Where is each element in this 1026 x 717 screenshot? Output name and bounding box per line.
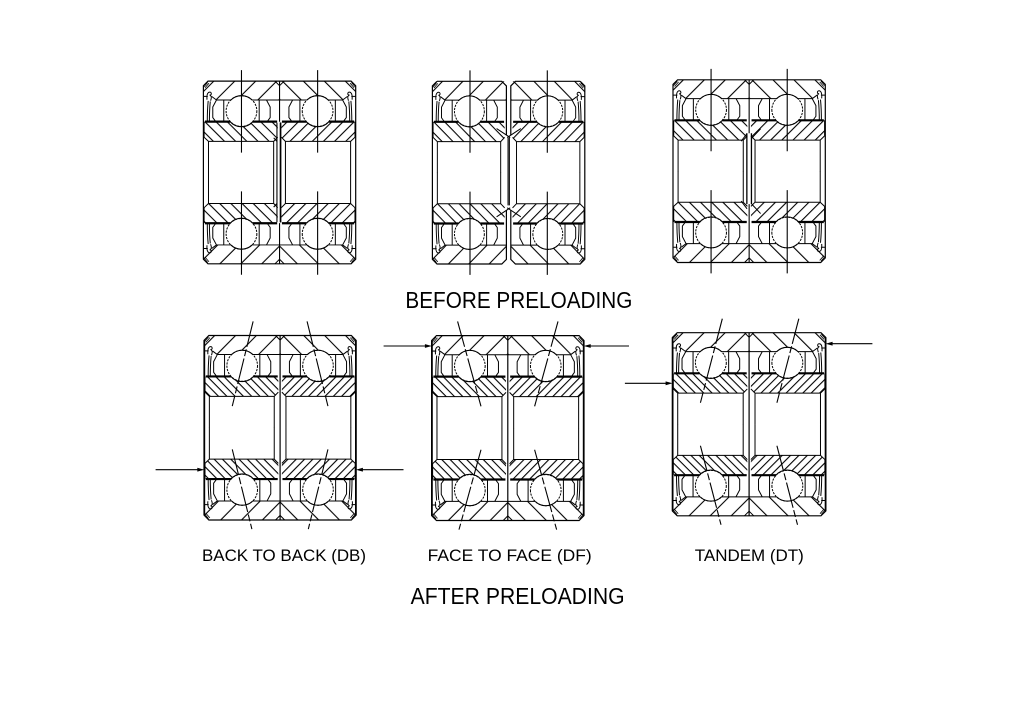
svg-text:FACE TO FACE (DF): FACE TO FACE (DF) bbox=[428, 547, 592, 565]
svg-text:AFTER PRELOADING: AFTER PRELOADING bbox=[411, 583, 625, 609]
svg-text:BACK TO BACK (DB): BACK TO BACK (DB) bbox=[202, 547, 366, 565]
svg-text:TANDEM (DT): TANDEM (DT) bbox=[695, 547, 804, 565]
svg-text:BEFORE PRELOADING: BEFORE PRELOADING bbox=[405, 287, 632, 313]
